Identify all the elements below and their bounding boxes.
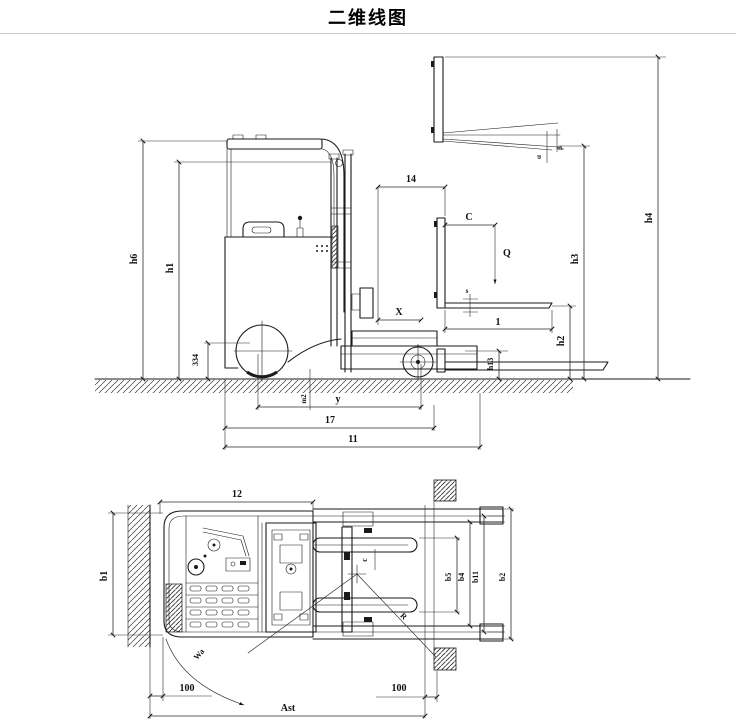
drive-wheel xyxy=(234,321,292,381)
drawing-page: 二维线图 xyxy=(0,0,736,723)
dim-h4-label: h4 xyxy=(644,213,655,224)
width-dimensions: b1 b5 b4 b11 b2 xyxy=(99,509,514,639)
dim-wa-label: Wa xyxy=(192,647,206,662)
dim-c-plan-label: c xyxy=(360,558,369,562)
load-wheel xyxy=(400,344,436,380)
dim-l2-label: 12 xyxy=(232,489,242,500)
dim-l1-label: 11 xyxy=(348,434,357,445)
grille-dots xyxy=(316,245,328,252)
fork-thickness-s-label: s xyxy=(466,287,469,295)
capacity-q-label: Q xyxy=(503,248,511,259)
dim-l4-label: 14 xyxy=(406,174,416,185)
clearance-left-label: 100 xyxy=(180,683,195,694)
dim-b1-label: b1 xyxy=(99,571,110,582)
forklift-top-view: b1 b5 b4 b11 b2 12 xyxy=(99,480,514,719)
forklift-side-view: α β h6 h1 334 h13 h2 xyxy=(95,57,690,450)
fork-length-label: 1 xyxy=(496,317,501,328)
mast-carriage-plan xyxy=(266,523,352,632)
dim-334-label: 334 xyxy=(191,354,200,366)
dim-c-label: C xyxy=(465,212,472,223)
reach-dimensions: 14 X xyxy=(378,174,445,325)
dim-h6-label: h6 xyxy=(129,254,140,265)
dim-r-label: R xyxy=(399,611,410,622)
dim-m2-label: m2 xyxy=(300,394,308,404)
fork-raised-position: α β xyxy=(431,57,564,163)
dim-x-label: X xyxy=(395,307,403,318)
aisle-wall xyxy=(128,505,150,647)
dim-b11-label: b11 xyxy=(471,571,480,583)
dim-b4-label: b4 xyxy=(457,573,466,581)
l2-dimension: 12 xyxy=(160,489,313,536)
clearance-right-label: 100 xyxy=(392,683,407,694)
tilt-angle-alpha-label: α xyxy=(535,155,543,159)
dim-h3-label: h3 xyxy=(570,254,581,265)
battery-slots xyxy=(190,586,249,627)
dim-l7-label: 17 xyxy=(325,415,335,426)
dim-h1-label: h1 xyxy=(165,263,176,274)
forks-plan xyxy=(313,528,417,622)
mast xyxy=(329,150,437,372)
dim-b5-label: b5 xyxy=(444,573,453,581)
load-centre-dimensions: C Q s 1 xyxy=(445,212,552,333)
wheelbase-y-label: y xyxy=(336,394,341,405)
turning-radius-construction: c R Wa xyxy=(166,549,436,705)
tilt-angle-beta-label: β xyxy=(556,146,564,150)
dim-h2-label: h2 xyxy=(556,336,567,347)
technical-drawing-canvas: α β h6 h1 334 h13 h2 xyxy=(0,0,736,723)
length-dimensions: m2 y 17 11 xyxy=(225,354,480,450)
ground-line xyxy=(95,379,690,393)
aisle-width-ast-label: Ast xyxy=(281,703,296,714)
fork-mid-position xyxy=(434,218,552,308)
dim-b2-label: b2 xyxy=(498,573,507,581)
dim-h13-label: h13 xyxy=(486,358,495,370)
